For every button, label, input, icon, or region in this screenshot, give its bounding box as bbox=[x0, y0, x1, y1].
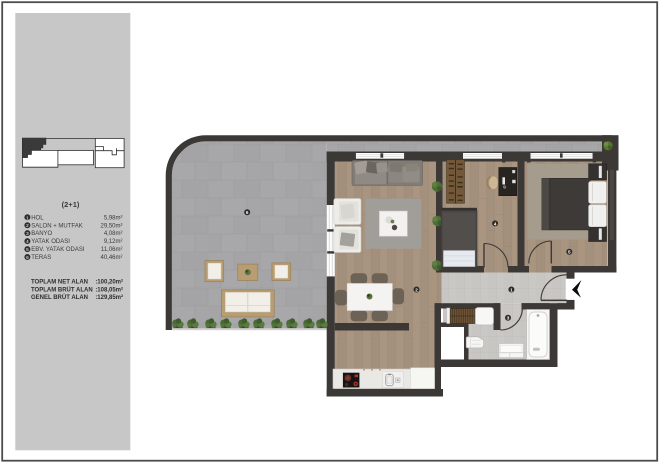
svg-text:11,06m²: 11,06m² bbox=[101, 247, 123, 253]
svg-text:6: 6 bbox=[246, 210, 249, 215]
svg-text:40,46m²: 40,46m² bbox=[100, 255, 122, 261]
svg-text:4,08m²: 4,08m² bbox=[104, 231, 123, 237]
svg-text::129,85m²: :129,85m² bbox=[95, 294, 123, 301]
svg-text::100,20m²: :100,20m² bbox=[95, 279, 123, 286]
svg-text:2: 2 bbox=[415, 287, 418, 292]
svg-text:5: 5 bbox=[568, 250, 571, 255]
svg-text:BANYO: BANYO bbox=[31, 231, 52, 237]
svg-text:HOL: HOL bbox=[31, 215, 44, 221]
svg-text:TOPLAM NET ALAN: TOPLAM NET ALAN bbox=[31, 280, 88, 286]
svg-text:9,12m²: 9,12m² bbox=[104, 239, 123, 245]
svg-text:1: 1 bbox=[510, 287, 513, 292]
svg-text:5: 5 bbox=[26, 247, 29, 252]
svg-text:1: 1 bbox=[26, 215, 29, 220]
svg-text:(2+1): (2+1) bbox=[62, 200, 80, 209]
svg-text:6: 6 bbox=[26, 255, 29, 260]
svg-text:29,50m²: 29,50m² bbox=[100, 223, 122, 229]
svg-text::108,05m²: :108,05m² bbox=[95, 287, 123, 294]
svg-text:GENEL BRÜT ALAN: GENEL BRÜT ALAN bbox=[31, 294, 88, 301]
svg-text:3: 3 bbox=[507, 316, 510, 321]
svg-text:5,98m²: 5,98m² bbox=[104, 215, 123, 221]
svg-text:3: 3 bbox=[26, 231, 29, 236]
svg-text:SALON + MUTFAK: SALON + MUTFAK bbox=[31, 223, 83, 229]
svg-text:TOPLAM BRÜT ALAN: TOPLAM BRÜT ALAN bbox=[31, 287, 93, 294]
svg-text:2: 2 bbox=[26, 223, 29, 228]
svg-text:EBV. YATAK ODASI: EBV. YATAK ODASI bbox=[31, 247, 85, 253]
svg-text:YATAK ODASI: YATAK ODASI bbox=[31, 239, 70, 245]
svg-text:4: 4 bbox=[494, 221, 497, 226]
svg-text:TERAS: TERAS bbox=[31, 255, 51, 261]
svg-text:4: 4 bbox=[26, 239, 29, 244]
